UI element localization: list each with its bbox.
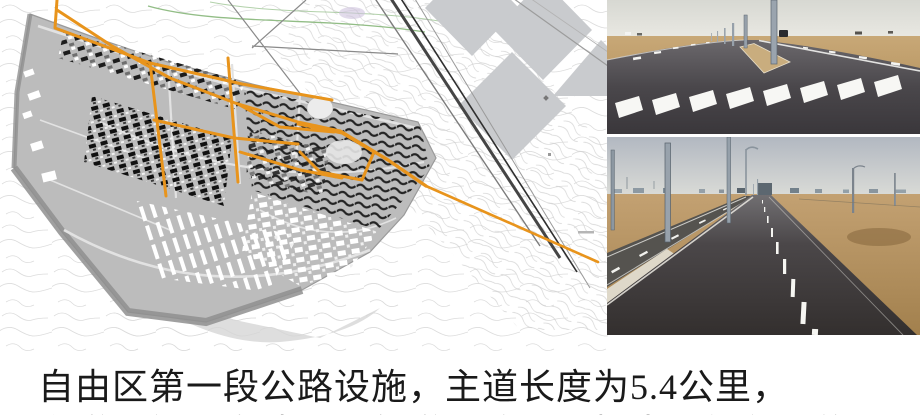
photo-road-straight [607,137,920,335]
photo-road-crosswalk [607,0,920,134]
lavender-area [339,7,365,19]
caption-line1: 自由区第一段公路设施，主道长度为5.4公里， [38,358,789,410]
tiny-map-label [578,231,594,234]
distant-gateway-building [757,183,772,195]
distant-vehicle [779,30,788,37]
park-area [326,140,362,164]
masterplan-svg [0,0,608,352]
desert-dark-patch [847,228,911,246]
caption-line2-clipped: 主道两侧配套建设人行道、路灯、排水及绿化设施。 [38,404,889,415]
masterplan-map [0,0,608,352]
slide-canvas: 自由区第一段公路设施，主道长度为5.4公里， 主道两侧配套建设人行道、路灯、排水… [0,0,920,415]
sky [607,0,920,42]
